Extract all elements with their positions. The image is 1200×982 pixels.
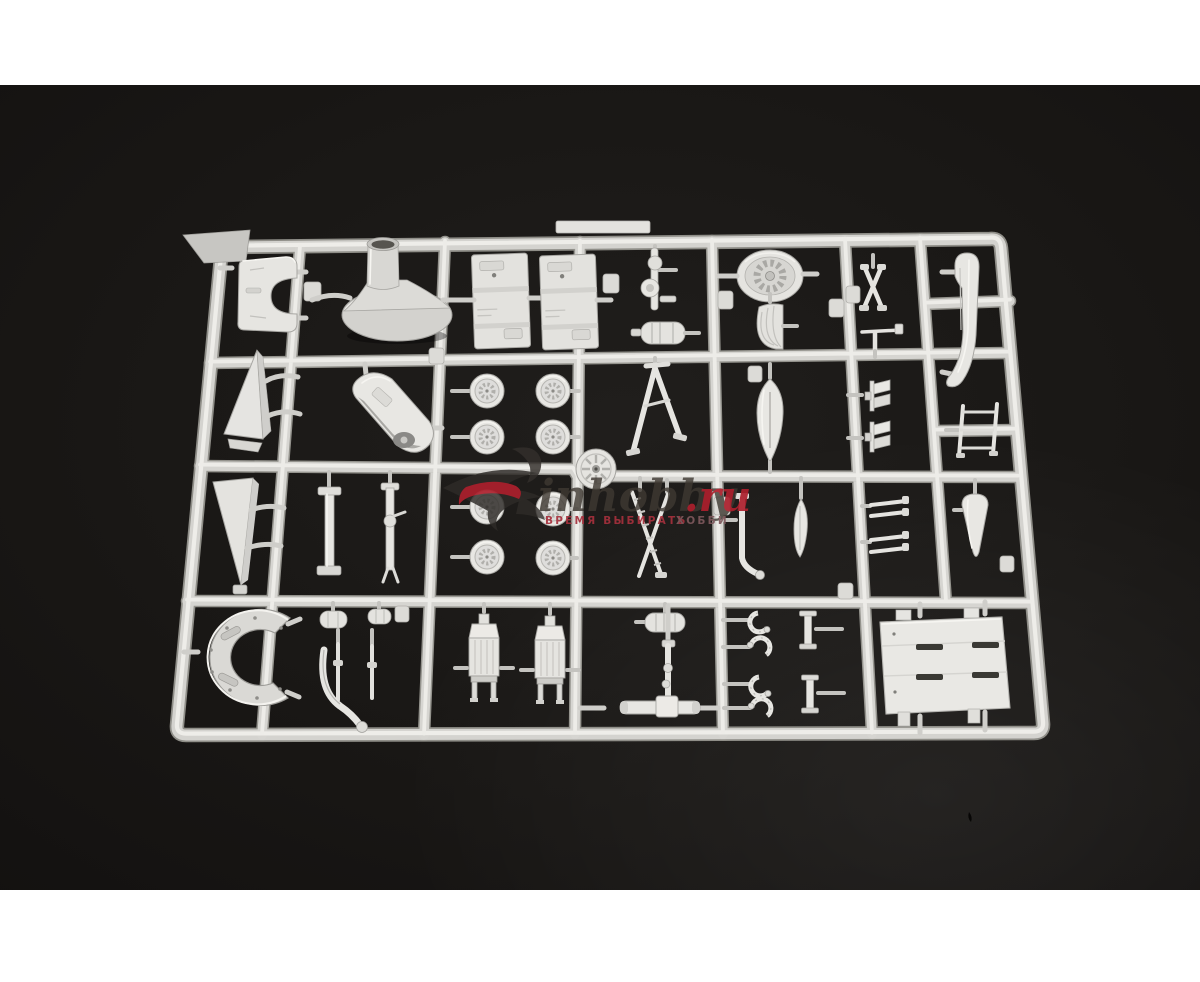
sprue-id-tag [556, 221, 650, 233]
watermark-domain-suffix: .ru [684, 472, 751, 521]
watermark-tagline-left: ВРЕМЯ ВЫБИРАТЬ [545, 515, 688, 527]
watermark-tagline-right: ХОББИ [676, 515, 729, 527]
product-photo-page: inhobby .ru ВРЕМЯ ВЫБИРАТЬ ХОББИ [0, 0, 1200, 982]
sprue-photo: inhobby .ru ВРЕМЯ ВЫБИРАТЬ ХОББИ [0, 0, 1200, 982]
